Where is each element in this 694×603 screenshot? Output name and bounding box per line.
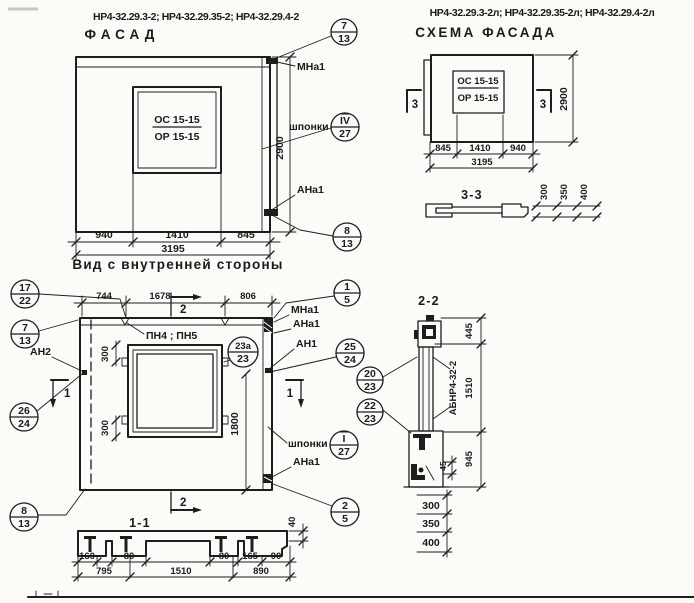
plan-label-an2: АН2 <box>30 346 51 358</box>
plan-label-ana1-bottom: АНа1 <box>293 456 320 468</box>
svg-text:23: 23 <box>237 353 249 365</box>
svg-text:5: 5 <box>342 513 348 525</box>
scheme-code: НР4-32.29.3-2л; НР4-32.29.35-2л; НР4-32.… <box>430 7 655 19</box>
section-1-1-dim-90: 90 <box>271 551 282 562</box>
svg-text:1: 1 <box>344 281 350 293</box>
svg-text:13: 13 <box>338 33 350 45</box>
facade-label-shponki: шпонки <box>289 121 329 133</box>
facade-title: ФАСАД <box>85 27 160 42</box>
section-3-3-dim-3: 400 <box>579 184 590 200</box>
facade-window-mark-bottom: ОР 15-15 <box>155 131 200 143</box>
plan-callout-17-22: 17 22 <box>11 280 39 308</box>
svg-text:26: 26 <box>18 405 30 417</box>
section-2-2-callout-20-23: 20 23 <box>357 367 383 393</box>
svg-text:27: 27 <box>338 446 350 458</box>
svg-text:17: 17 <box>19 282 31 294</box>
facade-dim-height: 2900 <box>274 136 286 160</box>
plan-callout-7-13: 7 13 <box>11 320 39 348</box>
svg-text:25: 25 <box>344 341 356 353</box>
plan-callout-2-5: 2 5 <box>331 498 359 526</box>
plan-section-2-label-top: 2 <box>180 304 186 316</box>
scheme-window-mark-top: ОС 15-15 <box>457 76 499 87</box>
svg-text:24: 24 <box>18 418 30 430</box>
plan-dim-300-top: 300 <box>100 346 111 362</box>
plan-label-mna1: МНа1 <box>291 304 319 316</box>
plan-callout-25-24: 25 24 <box>336 339 364 367</box>
section-1-1-dim-890: 890 <box>253 566 269 577</box>
facade-dim-left: 940 <box>95 229 113 241</box>
section-2-2-dim-945: 945 <box>464 450 475 467</box>
facade-dim-mid: 1410 <box>165 229 189 241</box>
svg-text:I: I <box>343 433 346 445</box>
plan-label-ana1: АНа1 <box>293 318 320 330</box>
facade-callout-shponki: IV 27 <box>331 113 359 141</box>
section-2-2-dim-400: 400 <box>422 537 440 549</box>
svg-text:8: 8 <box>21 505 27 517</box>
plan-label-shponki: шпонки <box>288 438 328 450</box>
svg-text:7: 7 <box>341 20 347 32</box>
plan-callout-1-5: 1 5 <box>334 280 360 306</box>
section-1-1-dim-1510: 1510 <box>170 566 191 577</box>
facade-callout-bottom: 8 13 <box>333 223 361 251</box>
scheme-window-mark-bottom: ОР 15-15 <box>458 93 499 104</box>
section-2-2-title: 2-2 <box>418 294 440 308</box>
section-2-2-foot-dowel <box>419 468 424 473</box>
section-2-2-dim-1510: 1510 <box>464 377 475 398</box>
scheme-dim-left: 845 <box>435 143 452 154</box>
plan-callout-23a-23: 23а 23 <box>228 337 258 367</box>
facade-label-mna1: МНа1 <box>297 61 325 73</box>
section-1-1-dim-80b: 80 <box>219 551 230 562</box>
svg-text:23: 23 <box>364 381 376 393</box>
scheme-dim-mid: 1410 <box>469 143 490 154</box>
section-2-2-dim-45: 45 <box>438 461 448 471</box>
section-1-1-title: 1-1 <box>129 516 151 530</box>
facade-window-mark-top: ОС 15-15 <box>154 114 200 126</box>
svg-text:23а: 23а <box>235 341 252 352</box>
section-2-2-top-anchor-cap <box>426 315 434 321</box>
facade-label-ana1: АНа1 <box>297 184 324 196</box>
svg-text:5: 5 <box>344 294 350 306</box>
svg-text:22: 22 <box>19 295 31 307</box>
svg-text:23: 23 <box>364 413 376 425</box>
plan-label-an1: АН1 <box>296 338 317 350</box>
scheme-dim-height: 2900 <box>558 87 570 111</box>
section-2-2-dim-300: 300 <box>422 500 440 512</box>
section-3-3-dim-1: 300 <box>539 184 550 200</box>
section-1-1-mark-2-label: 2 <box>180 497 186 509</box>
scheme-section-mark-right-label: 3 <box>540 99 546 111</box>
scheme-section-mark-left-label: 3 <box>412 99 418 111</box>
svg-text:13: 13 <box>18 518 30 530</box>
facade-subtitle: Вид с внутренней стороны <box>72 257 283 272</box>
svg-text:24: 24 <box>344 354 356 366</box>
plan-dim-300-bottom: 300 <box>100 420 111 436</box>
plan-dim-1800: 1800 <box>229 412 241 436</box>
svg-text:22: 22 <box>364 400 376 412</box>
section-2-2-top-anchor-ring-hole <box>426 329 433 336</box>
section-3-3-dim-2: 350 <box>559 184 570 200</box>
plan-label-pn: ПН4 ; ПН5 <box>146 330 197 342</box>
svg-text:27: 27 <box>339 128 351 140</box>
section-2-2-dim-445: 445 <box>464 322 475 339</box>
facade-code: НР4-32.29.3-2; НР4-32.29.35-2; НР4-32.29… <box>93 11 300 23</box>
facade-dim-right: 845 <box>237 229 255 241</box>
drawing-sheet: НР4-32.29.3-2; НР4-32.29.35-2; НР4-32.29… <box>0 0 694 603</box>
plan-section-1-label-right: 1 <box>287 388 294 400</box>
section-1-1-dim-40: 40 <box>287 517 298 528</box>
section-1-1-dim-80a: 80 <box>124 551 135 562</box>
section-2-2-dim-350: 350 <box>422 518 440 530</box>
plan-callout-8-13: 8 13 <box>10 503 38 531</box>
svg-text:IV: IV <box>340 115 350 127</box>
section-2-2-callout-22-23: 22 23 <box>357 399 383 425</box>
scheme-title: СХЕМА ФАСАДА <box>415 25 557 40</box>
plan-an2-marker <box>82 370 87 375</box>
plan-section-1-label-left: 1 <box>64 388 71 400</box>
section-1-1-dim-160: 160 <box>79 551 95 562</box>
facade-top-anchor <box>266 58 278 64</box>
plan-dim-top-left: 744 <box>96 291 113 302</box>
section-2-2-label-abnr: АБНР4-32-2 <box>448 361 459 415</box>
section-1-1-dim-165: 165 <box>242 551 259 562</box>
svg-text:13: 13 <box>341 238 353 250</box>
svg-text:2: 2 <box>342 500 348 512</box>
section-1-1-dim-795: 795 <box>96 566 113 577</box>
scheme-dim-right: 940 <box>510 143 526 154</box>
svg-text:8: 8 <box>344 225 350 237</box>
facade-callout-top: 7 13 <box>331 19 357 45</box>
scheme-dim-total: 3195 <box>471 157 493 168</box>
section-3-3-title: 3-3 <box>461 188 483 202</box>
facade-dim-total: 3195 <box>161 243 185 255</box>
section-2-2-top-anchor-nub <box>414 330 418 339</box>
plan-callout-i-27: I 27 <box>330 431 358 459</box>
plan-callout-26-24: 26 24 <box>10 403 38 431</box>
svg-text:20: 20 <box>364 368 376 380</box>
panel-drawing: НР4-32.29.3-2; НР4-32.29.35-2; НР4-32.29… <box>0 0 694 603</box>
svg-text:7: 7 <box>22 322 28 334</box>
plan-dim-top-mid: 1678 <box>149 291 170 302</box>
plan-dim-top-right: 806 <box>240 291 256 302</box>
